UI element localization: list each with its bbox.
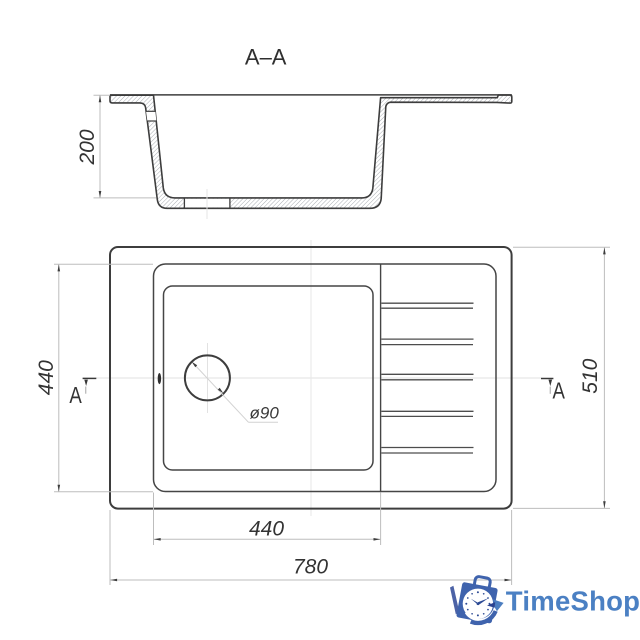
svg-text:A: A: [553, 377, 566, 403]
svg-text:780: 780: [293, 556, 328, 579]
svg-text:440: 440: [35, 360, 58, 395]
svg-text:440: 440: [249, 518, 284, 541]
svg-text:510: 510: [579, 358, 602, 393]
svg-text:A–A: A–A: [245, 44, 287, 69]
svg-text:ø90: ø90: [250, 403, 280, 422]
svg-text:A: A: [69, 382, 82, 408]
svg-text:TimeShop: TimeShop: [506, 585, 640, 616]
svg-text:200: 200: [76, 129, 99, 165]
